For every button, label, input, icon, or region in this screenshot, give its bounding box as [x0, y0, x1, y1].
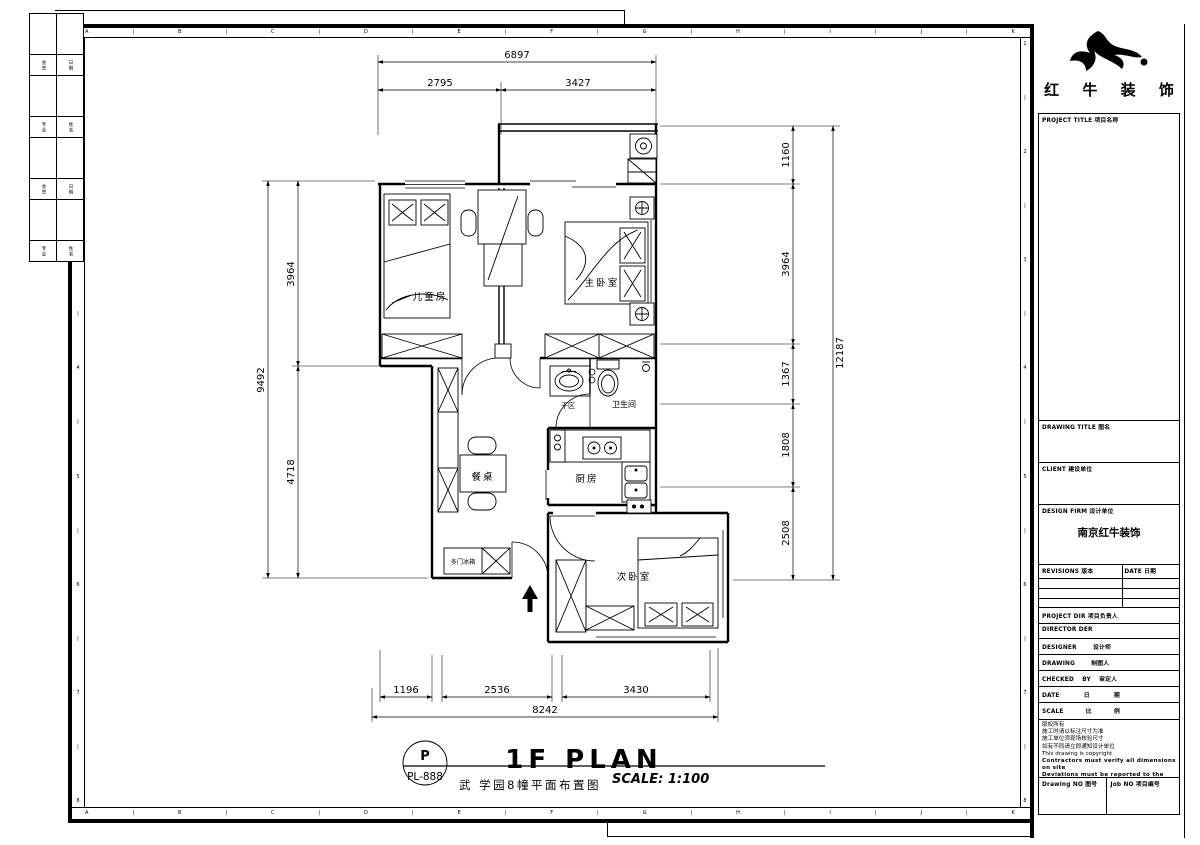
sign-cell: 会签 [29, 54, 57, 76]
grid-number: 6 [76, 583, 79, 588]
field-client-label: CLIENT 建设单位 [1042, 464, 1092, 473]
sign-cell [56, 13, 84, 55]
grid-number: 8 [76, 799, 79, 804]
dim-bottom-total: 8242 [532, 705, 557, 716]
grid-letters-top: A|B|C|D|E|F|G|H|I|J|K [85, 28, 1015, 36]
grid-number: 2 [1023, 150, 1026, 155]
grid-letter: K [1012, 811, 1015, 816]
field-scale: SCALE 比 例 [1038, 702, 1180, 720]
field-drawing-by: DRAWING 制图人 [1038, 654, 1180, 671]
grid-number: 4 [1023, 366, 1026, 371]
note-line: 施工单位须现场核验尺寸 [1042, 736, 1176, 743]
grid-number: 7 [76, 691, 79, 696]
sign-cell [29, 13, 57, 55]
field-scale-label: SCALE 比 例 [1042, 706, 1120, 715]
revisions-table: REVISIONS 版本 DATE 日期 [1038, 564, 1180, 608]
grid-tick: | [132, 811, 134, 816]
rednbull-logo-icon [1064, 29, 1154, 79]
inner-line-bottom [72, 807, 1030, 808]
sheet-title: P PL-888 1F PLAN 武 学园8幢平面布置图 SCALE: 1:10… [403, 741, 825, 792]
dim-left-total: 9492 [256, 367, 267, 392]
grid-tick: | [1024, 312, 1026, 317]
sign-cell [29, 199, 57, 241]
grid-number: 5 [76, 475, 79, 480]
note-line: Contractors must verify all dimensions o… [1042, 758, 1176, 772]
title-block: 红 牛 装 饰 PROJECT TITLE 项目名称 DRAWING TITLE… [1034, 25, 1184, 838]
label-children-room: 儿童房 [413, 291, 448, 303]
grid-number: 4 [76, 366, 79, 371]
grid-letter: I [829, 30, 830, 35]
dim-top-left: 2795 [427, 78, 452, 89]
job-no-label: Job NO 项目编号 [1110, 779, 1160, 788]
plan-subtitle: 武 学园8幢平面布置图 [459, 778, 601, 792]
field-designer-label: DESIGNER 设计师 [1042, 642, 1111, 651]
sign-cell: 姓名 [56, 116, 84, 138]
grid-tick: | [597, 811, 599, 816]
trim-top-notch [624, 10, 625, 24]
grid-tick: | [77, 312, 79, 317]
label-dining-table: 餐桌 [471, 471, 494, 483]
border-right-thin [1184, 24, 1185, 838]
grid-tick: | [77, 529, 79, 534]
sign-cell: 会签 [29, 178, 57, 200]
dim-bottom-1: 1196 [393, 685, 418, 696]
dim-right-1: 1160 [781, 142, 792, 167]
grid-tick: | [875, 30, 877, 35]
field-design-firm-label: DESIGN FIRM 设计单位 [1042, 506, 1114, 515]
dim-right-total: 12187 [835, 337, 846, 369]
sign-cell: 专业 [29, 116, 57, 138]
field-project-title-label: PROJECT TITLE 项目名称 [1042, 115, 1119, 124]
grid-numbers-right: 1|2|3|4|5|6|7|8 [1021, 42, 1029, 804]
grid-tick: | [77, 637, 79, 642]
label-fridge: 多门冰箱 [451, 558, 476, 566]
trim-bottom-notch [607, 823, 608, 836]
grid-tick: | [966, 811, 968, 816]
revisions-label: REVISIONS 版本 [1042, 566, 1093, 575]
note-line: 如有不同请立即通知设计单位 [1042, 744, 1176, 751]
design-firm-value: 南京红牛装饰 [1039, 525, 1179, 540]
field-drawing-title-label: DRAWING TITLE 图名 [1042, 422, 1110, 431]
grid-letter: F [550, 811, 553, 816]
brand-name: 红 牛 装 饰 [1034, 79, 1184, 100]
grid-letter: K [1012, 30, 1015, 35]
grid-tick: | [875, 811, 877, 816]
field-drawing-title: DRAWING TITLE 图名 [1038, 420, 1180, 463]
revisions-date-label: DATE 日期 [1124, 566, 1156, 575]
grid-tick: | [1024, 745, 1026, 750]
grid-letter: D [364, 811, 368, 816]
sign-strip: 会签日期专业姓名会签日期专业姓名 [30, 14, 84, 262]
grid-letter: J [920, 811, 921, 816]
sign-cell [56, 137, 84, 179]
grid-tick: | [1024, 420, 1026, 425]
notes-block: 版权所有施工时请以标注尺寸为准施工单位须现场核验尺寸如有不同请立即通知设计单位T… [1038, 719, 1180, 778]
grid-tick: | [784, 811, 786, 816]
grid-letter: D [364, 30, 368, 35]
grid-tick: | [225, 30, 227, 35]
grid-tick: | [597, 30, 599, 35]
sign-cell [56, 75, 84, 117]
grid-tick: | [318, 811, 320, 816]
grid-letter: G [643, 30, 647, 35]
field-director: DIRECTOR DER [1038, 623, 1180, 639]
grid-tick: | [1024, 637, 1026, 642]
field-client: CLIENT 建设单位 [1038, 462, 1180, 505]
note-line: This drawing is copyright [1042, 751, 1176, 758]
grid-tick: | [505, 30, 507, 35]
grid-tick: | [1024, 204, 1026, 209]
dim-left-lower: 4718 [286, 459, 297, 484]
field-date-label: DATE 日 期 [1042, 690, 1120, 699]
label-kitchen: 厨房 [575, 473, 598, 485]
entry-arrow [522, 585, 538, 612]
grid-tick: | [690, 811, 692, 816]
field-checked-by-label: CHECKED BY 审定人 [1042, 674, 1117, 683]
inner-line-left [84, 37, 85, 808]
drawing-sheet: 儿童房 主卧室 干区 卫生间 厨房 餐桌 多门冰箱 次卧室 6897 2795 … [0, 0, 1200, 845]
grid-letter: F [550, 30, 553, 35]
inner-line-top [72, 37, 1030, 38]
dim-right-2: 3964 [781, 251, 792, 276]
trim-top [55, 10, 624, 11]
plan-scale: SCALE: 1:100 [612, 772, 709, 787]
dim-top-right: 3427 [565, 78, 590, 89]
plan-title: 1F PLAN [505, 745, 662, 775]
grid-tick: | [1024, 529, 1026, 534]
dim-bottom-2: 2536 [484, 685, 509, 696]
grid-letter: C [271, 811, 275, 816]
border-bottom [68, 819, 1034, 823]
grid-tick: | [77, 745, 79, 750]
sign-cell [29, 137, 57, 179]
grid-tick: | [318, 30, 320, 35]
grid-letter: E [457, 30, 460, 35]
field-designer: DESIGNER 设计师 [1038, 638, 1180, 655]
field-design-firm: DESIGN FIRM 设计单位 南京红牛装饰 [1038, 504, 1180, 565]
grid-tick: | [225, 811, 227, 816]
grid-letter: E [457, 811, 460, 816]
dim-bottom-3: 3430 [623, 685, 648, 696]
grid-number: 8 [1023, 799, 1026, 804]
field-checked-by: CHECKED BY 审定人 [1038, 670, 1180, 687]
grid-letter: H [736, 811, 740, 816]
sign-cell: 日期 [56, 54, 84, 76]
grid-number: 6 [1023, 583, 1026, 588]
dim-right-3: 1367 [781, 361, 792, 386]
grid-number: 1 [1023, 42, 1026, 47]
label-bathroom: 卫生间 [612, 399, 636, 409]
dim-right-4: 1808 [781, 432, 792, 457]
grid-letter: C [271, 30, 275, 35]
logo-cell: 红 牛 装 饰 [1034, 25, 1184, 114]
grid-tick: | [784, 30, 786, 35]
sign-cell: 姓名 [56, 240, 84, 262]
label-second-bedroom: 次卧室 [617, 571, 652, 583]
grid-tick: | [966, 30, 968, 35]
sign-cell: 专业 [29, 240, 57, 262]
dim-left-upper: 3964 [286, 261, 297, 286]
field-drawing-by-label: DRAWING 制图人 [1042, 658, 1109, 667]
grid-tick: | [132, 30, 134, 35]
grid-tick: | [77, 420, 79, 425]
grid-letter: B [178, 811, 181, 816]
dimensions: 6897 2795 3427 9492 3964 4718 12187 1160… [256, 50, 846, 722]
field-project-title: PROJECT TITLE 项目名称 [1038, 113, 1180, 421]
grid-tick: | [505, 811, 507, 816]
label-master-bedroom: 主卧室 [585, 277, 620, 289]
grid-tick: | [1024, 96, 1026, 101]
stamp-letter: P [420, 749, 430, 764]
grid-number: 7 [1023, 691, 1026, 696]
field-project-dir-label: PROJECT DIR 项目负责人 [1042, 611, 1118, 620]
label-dry-area: 干区 [561, 402, 575, 410]
grid-number: 5 [1023, 475, 1026, 480]
grid-letter: G [643, 811, 647, 816]
grid-letter: I [829, 811, 830, 816]
sign-cell [29, 75, 57, 117]
sign-cell: 日期 [56, 178, 84, 200]
drawing-no-label: Drawing NO 图号 [1042, 779, 1097, 788]
grid-letter: J [920, 30, 921, 35]
numbers-row: Drawing NO 图号 Job NO 项目编号 [1038, 777, 1180, 815]
grid-number: 3 [1023, 258, 1026, 263]
field-date: DATE 日 期 [1038, 686, 1180, 703]
field-director-label: DIRECTOR DER [1042, 627, 1093, 633]
dim-top-total: 6897 [504, 50, 529, 61]
grid-tick: | [690, 30, 692, 35]
grid-tick: | [412, 811, 414, 816]
grid-letter: B [178, 30, 181, 35]
sign-cell [56, 199, 84, 241]
dim-right-5: 2508 [781, 520, 792, 545]
grid-letter: H [736, 30, 740, 35]
grid-letter: A [85, 30, 88, 35]
stamp-code: PL-888 [407, 771, 443, 783]
grid-letter: A [85, 811, 88, 816]
grid-letters-bottom: A|B|C|D|E|F|G|H|I|J|K [85, 809, 1015, 817]
grid-tick: | [412, 30, 414, 35]
field-project-dir: PROJECT DIR 项目负责人 [1038, 607, 1180, 624]
